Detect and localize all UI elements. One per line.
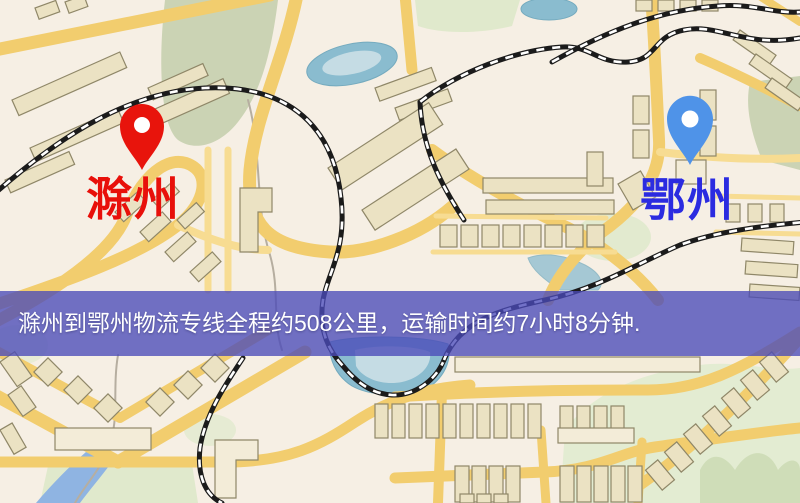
map-canvas[interactable]: 滁州 鄂州 滁州到鄂州物流专线全程约508公里，运输时间约7小时8分钟. <box>0 0 800 503</box>
origin-city-label: 滁州 <box>86 176 180 222</box>
origin-pin-icon[interactable] <box>120 104 164 170</box>
map-image <box>0 0 800 503</box>
destination-city-label: 鄂州 <box>640 177 734 223</box>
route-info-banner: 滁州到鄂州物流专线全程约508公里，运输时间约7小时8分钟. <box>0 291 800 356</box>
route-info-text: 滁州到鄂州物流专线全程约508公里，运输时间约7小时8分钟. <box>0 291 800 356</box>
